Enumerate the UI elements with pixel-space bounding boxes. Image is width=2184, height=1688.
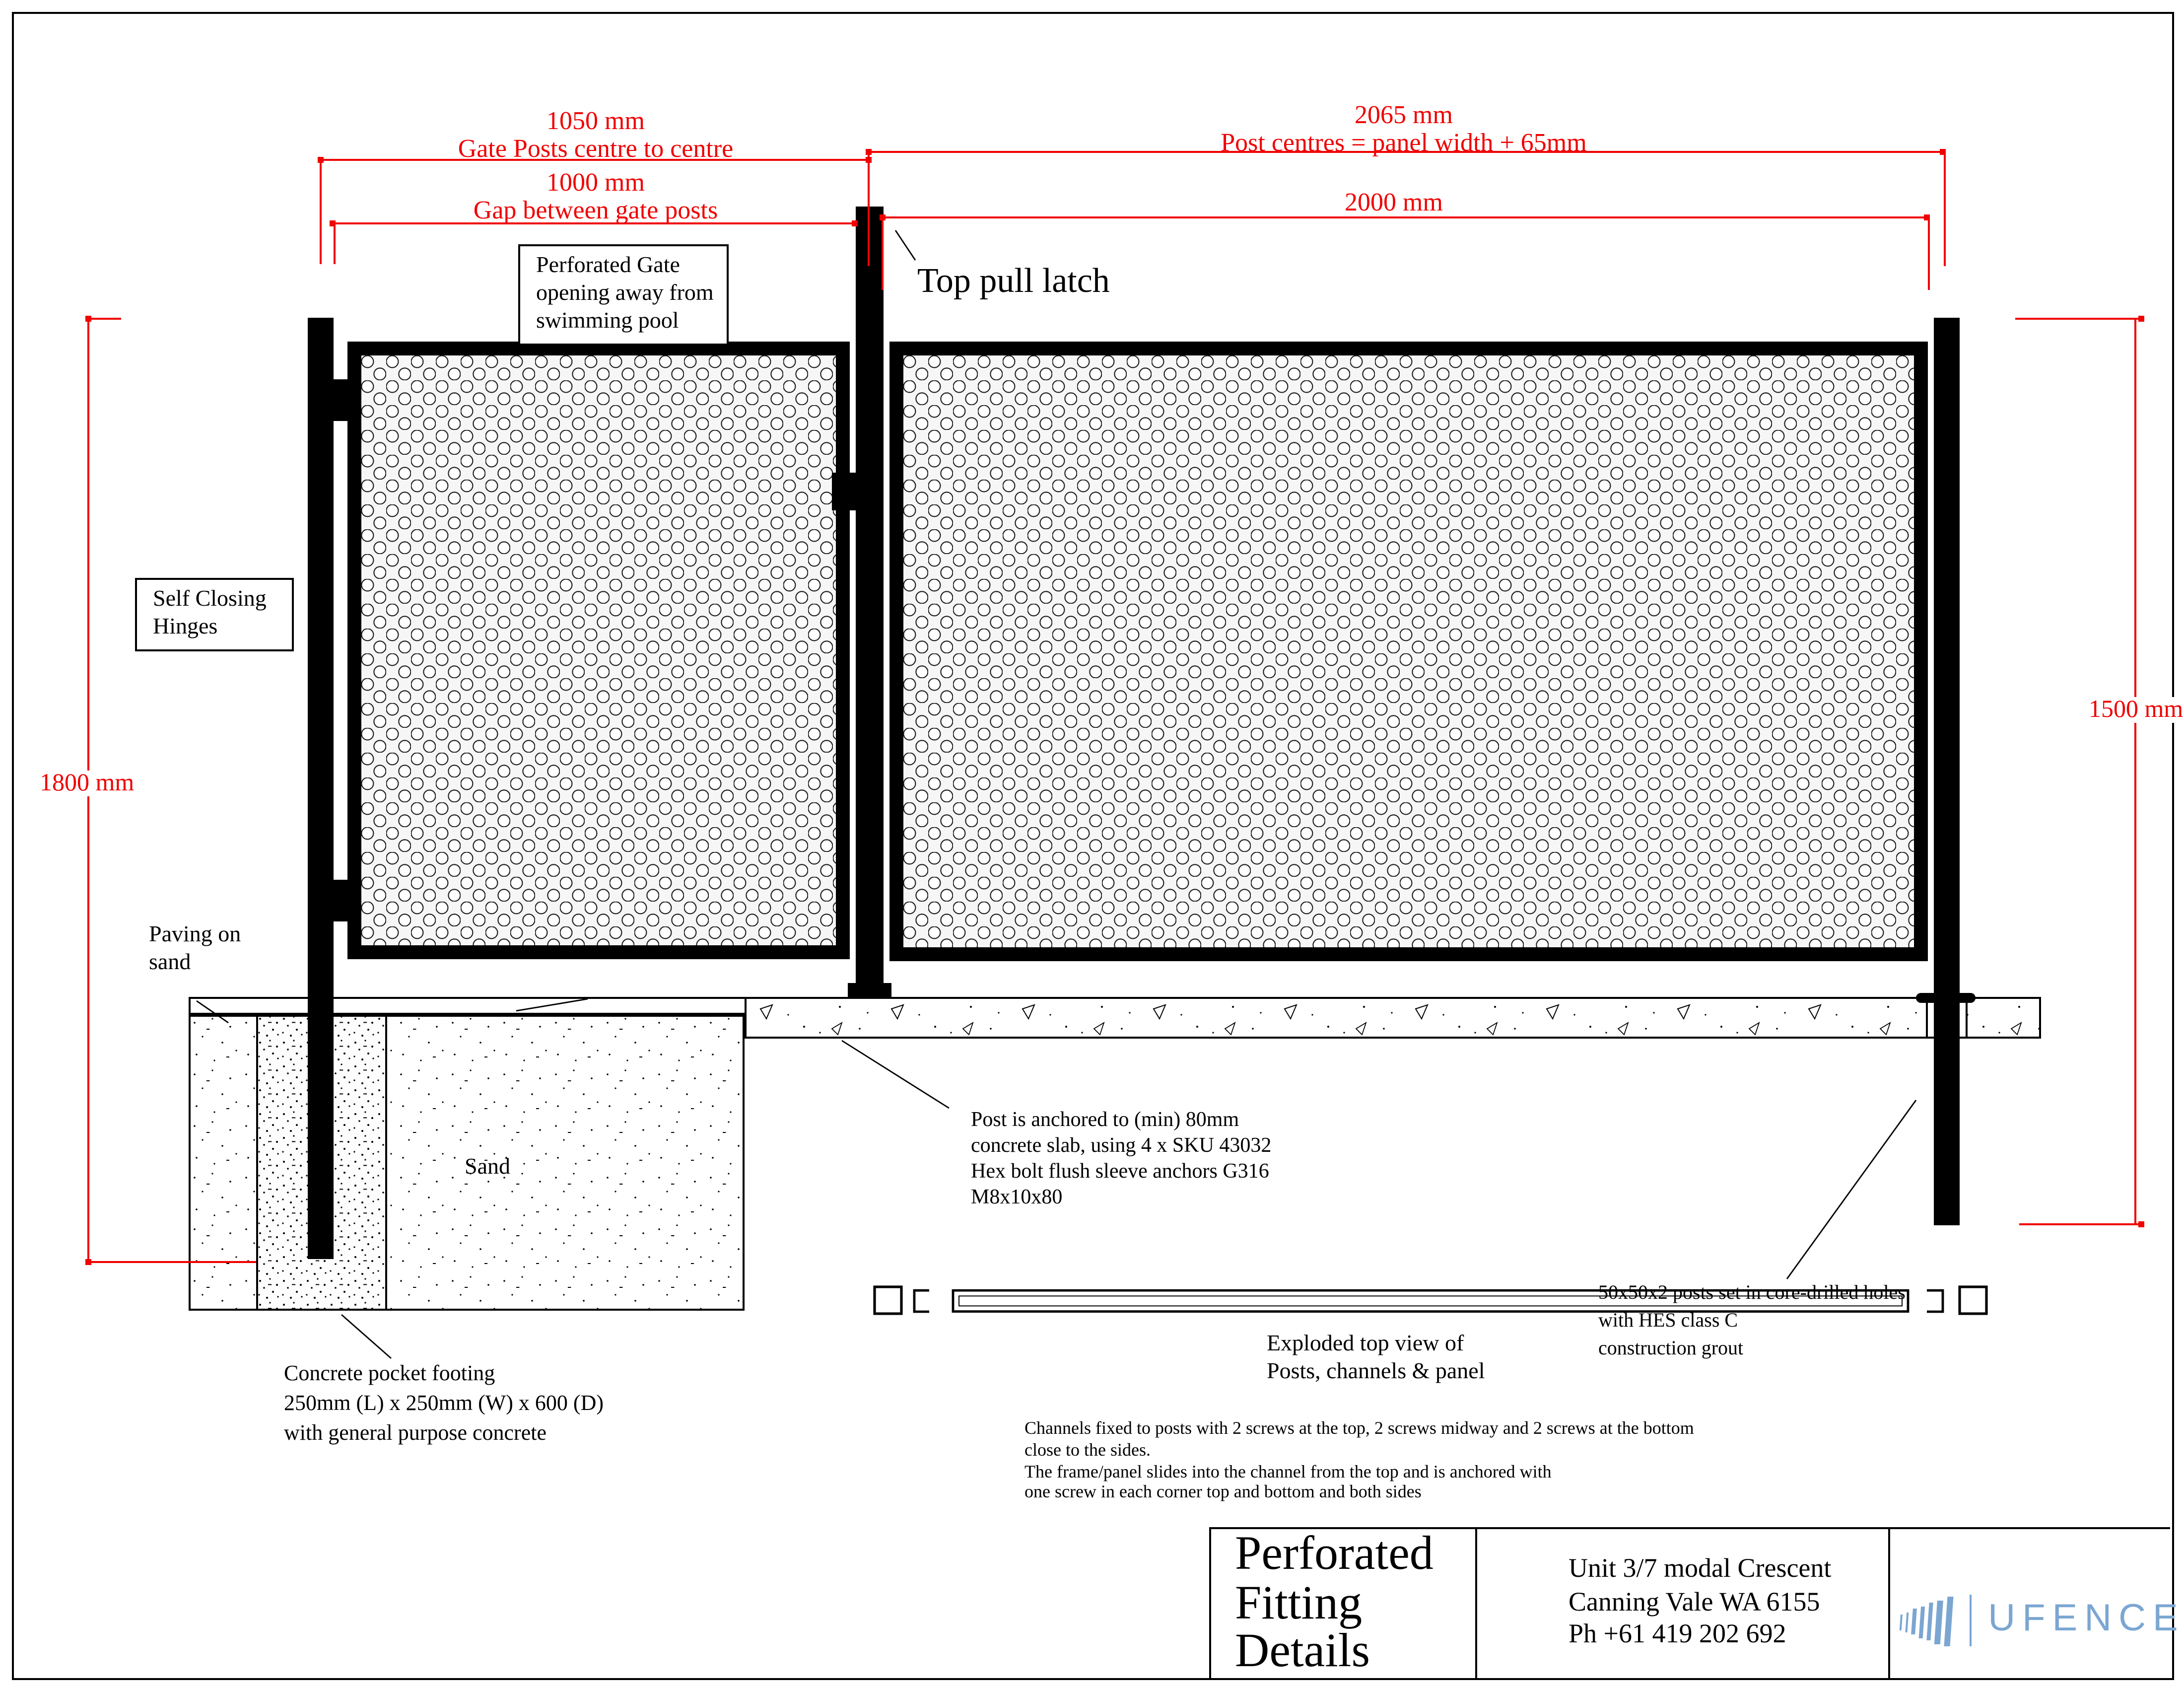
exploded-channel-right (1927, 1290, 1943, 1312)
dim-2000-line (882, 216, 1928, 218)
company-logo: UFENCEIT (1900, 1595, 2184, 1658)
sheet-title: Perforated Fitting Details (1235, 1531, 1433, 1677)
top-pull-latch-label: Top pull latch (917, 260, 1110, 302)
channels-note: Channels fixed to posts with 2 screws at… (1024, 1418, 1694, 1504)
titleblock-divider-1 (1475, 1526, 1477, 1677)
dim-2000-value: 2000 mm (1345, 189, 1443, 214)
logo-separator-bar (1970, 1595, 1972, 1646)
exploded-post-left (875, 1287, 901, 1314)
core-drilled-note: 50x50x2 posts set in core-drilled holes … (1598, 1281, 1906, 1364)
gate-note-line: swimming pool (536, 308, 715, 336)
gate-note-line: Perforated Gate (536, 252, 715, 280)
dim-1050-caption: Gate Posts centre to centre (458, 135, 734, 161)
paving-label: Paving on sand (149, 921, 241, 977)
dim-1800-value: 1800 mm (36, 771, 138, 796)
logo-text: UFENCEIT (1988, 1599, 2184, 1640)
exploded-channel-left (914, 1290, 929, 1312)
dim-1500-value: 1500 mm (2085, 697, 2184, 723)
dim-1500-line (2134, 318, 2136, 1223)
pocket-footing-note: Concrete pocket footing 250mm (L) x 250m… (284, 1360, 604, 1450)
company-address: Unit 3/7 modal Crescent Canning Vale WA … (1569, 1553, 1831, 1651)
dim-1000-value: 1000 mm (546, 169, 645, 195)
dim-1000-caption: Gap between gate posts (474, 197, 718, 222)
self-closing-hinges-box: Self Closing Hinges (135, 578, 294, 651)
dim-2065-caption: Post centres = panel width + 65mm (1221, 129, 1587, 155)
sand-label: Sand (465, 1156, 510, 1180)
gate-note-line: opening away from (536, 280, 715, 308)
exploded-post-right (1960, 1287, 1986, 1314)
exploded-caption: Exploded top view of Posts, channels & p… (1267, 1331, 1485, 1386)
gate-note-box: Perforated Gate opening away from swimmi… (518, 244, 729, 346)
drawing-sheet: 1050 mm Gate Posts centre to centre 1000… (0, 0, 2184, 1688)
titleblock-top-border (1209, 1526, 2170, 1528)
dim-2065-value: 2065 mm (1355, 101, 1453, 127)
post-anchor-note: Post is anchored to (min) 80mm concrete … (971, 1108, 1271, 1211)
titleblock-left-border (1209, 1526, 1211, 1677)
dim-1050-value: 1050 mm (546, 107, 645, 133)
fence-bars-icon (1899, 1596, 1958, 1645)
titleblock-divider-2 (1888, 1526, 1890, 1677)
